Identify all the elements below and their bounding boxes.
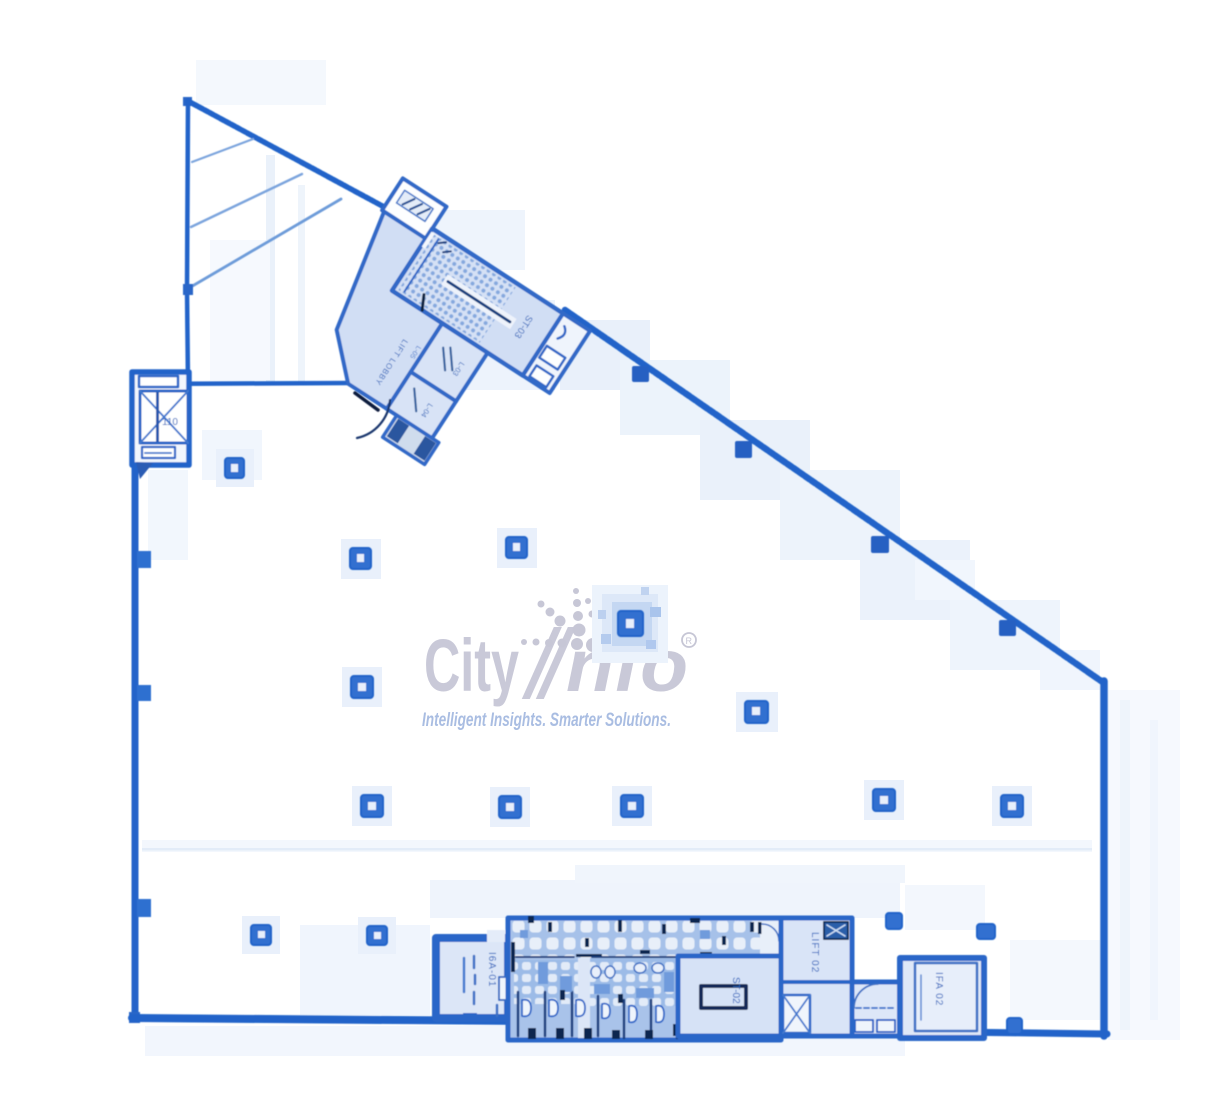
svg-text:IFA 02: IFA 02: [933, 972, 944, 1006]
svg-text:I6A-01: I6A-01: [486, 952, 497, 987]
svg-text:City: City: [424, 624, 519, 707]
svg-text:ST-02: ST-02: [730, 977, 741, 1004]
svg-text:LIFT 02: LIFT 02: [809, 932, 820, 973]
svg-text:110: 110: [162, 417, 178, 428]
svg-text:Intelligent Insights. Smarter: Intelligent Insights. Smarter Solutions.: [422, 710, 671, 731]
svg-text:R: R: [686, 636, 693, 646]
